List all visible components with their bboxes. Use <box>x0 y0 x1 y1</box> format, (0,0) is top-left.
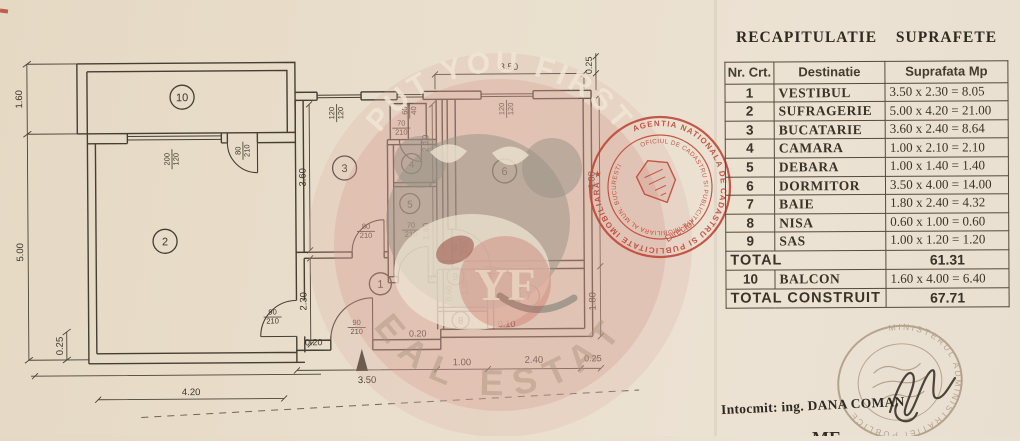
table-row: 3BUCATARIE3.60 x 2.40 = 8.64 <box>725 120 1008 140</box>
table-cell: BALCON <box>775 270 886 289</box>
watermark-monogram: YF <box>474 259 535 310</box>
table-cell: 8 <box>726 214 775 233</box>
room-circle-2: 2 <box>153 229 177 253</box>
table-cell: 1.80 x 2.40 = 4.32 <box>886 194 1009 213</box>
table-cell: TOTAL <box>726 250 886 271</box>
wall-room2-right <box>295 100 305 352</box>
header-nr-crt: Nr. Crt. <box>725 62 774 84</box>
door-label-90a: 90 210 <box>264 307 282 325</box>
opening-top: 90 <box>268 308 276 317</box>
table-cell: 3.50 x 2.30 = 8.05 <box>885 83 1008 102</box>
room-number: 10 <box>176 92 188 104</box>
table-cell: BAIE <box>775 194 886 213</box>
door-label-80a: 80 210 <box>233 142 251 160</box>
scan-artifact-mark <box>0 8 8 13</box>
table-cell: 61.31 <box>886 249 1009 269</box>
surface-recap-table: Nr. Crt. Destinatie Suprafata Mp 1VESTIB… <box>724 60 1009 309</box>
surface-table-body: 1VESTIBUL3.50 x 2.30 = 8.052SUFRAGERIE5.… <box>725 83 1009 309</box>
table-cell: 1.00 x 1.40 = 1.40 <box>885 157 1008 176</box>
window-label-120a: 120 120 <box>327 104 345 122</box>
total-row: TOTAL CONSTRUIT67.71 <box>726 288 1009 309</box>
table-row: 8NISA0.60 x 1.00 = 0.60 <box>726 212 1009 232</box>
table-cell: 1.00 x 1.20 = 1.20 <box>886 231 1009 250</box>
table-cell: NISA <box>775 213 886 232</box>
dim-wall-bottomleft: 0.25 <box>55 337 66 356</box>
table-cell: DORMITOR <box>774 176 885 195</box>
dim-020a: 0.20 <box>305 337 323 347</box>
page-title: RECAPITULATIE SUPRAFETE <box>736 29 997 47</box>
table-cell: SUFRAGERIE <box>774 102 885 121</box>
opening-bottom: 120 <box>336 107 345 120</box>
table-row: 9SAS1.00 x 1.20 = 1.20 <box>726 231 1009 251</box>
dim-room2-width: 4.20 <box>182 387 201 398</box>
room-number: 2 <box>162 236 168 248</box>
dim-room2-height: 5.00 <box>15 243 26 262</box>
header-suprafata: Suprafata Mp <box>885 61 1008 84</box>
opening-top: 200 <box>162 153 171 166</box>
ministry-stamp: MINISTERUL ADMINISTRATIEI PUBLICE <box>827 310 975 436</box>
dim-room3-height: 3.60 <box>298 168 309 187</box>
table-row: 1VESTIBUL3.50 x 2.30 = 8.05 <box>725 83 1008 103</box>
table-row: 10BALCON1.60 x 4.00 = 6.40 <box>726 269 1009 289</box>
table-cell: 5.00 x 4.20 = 21.00 <box>885 101 1008 120</box>
table-cell: SAS <box>775 231 886 250</box>
table-cell: 1.00 x 2.10 = 2.10 <box>885 138 1008 157</box>
table-row: 4CAMARA1.00 x 2.10 = 2.10 <box>725 138 1008 158</box>
opening-bottom: 120 <box>171 153 180 166</box>
table-header-row: Nr. Crt. Destinatie Suprafata Mp <box>725 61 1008 84</box>
table-cell: 67.71 <box>886 288 1009 308</box>
document-scan: 1.60 5.00 0.25 4.20 0.20 3.50 1.00 2.40 … <box>0 0 1020 436</box>
table-cell: DEBARA <box>774 157 885 176</box>
room-circle-10: 10 <box>170 85 194 109</box>
dim-room1-height: 2.30 <box>298 292 309 311</box>
table-cell: BUCATARIE <box>774 120 885 139</box>
table-cell: VESTIBUL <box>774 83 885 102</box>
wall-balcony-room2 <box>77 132 295 144</box>
table-cell: 4 <box>725 139 774 158</box>
table-cell: 1 <box>725 84 774 103</box>
table-row: 5DEBARA1.00 x 1.40 = 1.40 <box>725 157 1008 177</box>
ministry-ring-text: MINISTERUL ADMINISTRATIEI PUBLICE <box>830 310 975 436</box>
opening-bottom: 210 <box>242 144 251 157</box>
total-row: TOTAL61.31 <box>726 249 1009 270</box>
table-row: 2SUFRAGERIE5.00 x 4.20 = 21.00 <box>725 101 1008 121</box>
window-label-200-120: 200 120 <box>162 149 180 169</box>
header-destinatie: Destinatie <box>774 61 885 84</box>
table-cell: 3.50 x 4.00 = 14.00 <box>885 175 1008 194</box>
table-cell: 6 <box>725 177 774 196</box>
table-cell: 9 <box>726 232 775 251</box>
opening-bottom: 210 <box>266 316 279 325</box>
table-cell: 2 <box>725 102 774 121</box>
table-cell: 0.60 x 1.00 = 0.60 <box>886 212 1009 231</box>
ministry-name: MINISTERUL ADMINISTRATIEI PUBLICE <box>830 310 975 436</box>
table-row: 7BAIE1.80 x 2.40 = 4.32 <box>726 194 1009 214</box>
paper-fold <box>714 0 717 436</box>
dim-balcony-height: 1.60 <box>14 90 25 109</box>
opening-top: 80 <box>233 147 242 155</box>
table-cell: CAMARA <box>774 139 885 158</box>
table-cell: 1.60 x 4.00 = 6.40 <box>886 269 1009 288</box>
table-cell: 3.60 x 2.40 = 8.64 <box>885 120 1008 139</box>
bottom-partial-text: ME <box>812 428 841 436</box>
table-cell: TOTAL CONSTRUIT <box>726 288 886 309</box>
wall-room2 <box>87 132 305 364</box>
window-200-120 <box>127 136 221 140</box>
table-row: 6DORMITOR3.50 x 4.00 = 14.00 <box>725 175 1008 195</box>
table-cell: 3 <box>725 121 774 140</box>
table-cell: 5 <box>725 158 774 177</box>
table-cell: 10 <box>726 270 775 289</box>
table-cell: 7 <box>726 195 775 214</box>
opening-top: 120 <box>327 107 336 120</box>
